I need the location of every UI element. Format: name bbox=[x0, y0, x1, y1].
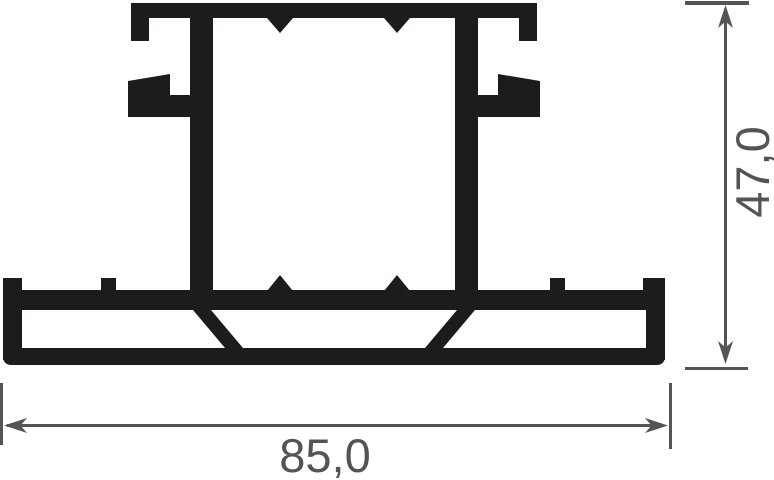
profile-base-tab-right bbox=[550, 278, 565, 292]
profile-base-tooth-left bbox=[267, 275, 293, 291]
profile-right-hook bbox=[478, 74, 540, 117]
profile-base-bottom bbox=[3, 348, 665, 365]
profile-base-tab-left bbox=[101, 278, 116, 292]
profile-top-tooth-right bbox=[384, 18, 410, 33]
profile-drawing: 47,0 85,0 bbox=[0, 0, 774, 480]
height-dim-ext-line-top bbox=[685, 1, 749, 5]
height-dimension: 47,0 bbox=[685, 1, 774, 370]
profile-base-tooth-right bbox=[384, 275, 410, 291]
height-dim-label: 47,0 bbox=[726, 126, 774, 217]
width-dim-line bbox=[7, 424, 663, 427]
profile-left-hook bbox=[128, 74, 190, 117]
profile-shape bbox=[3, 3, 665, 365]
profile-left-leg bbox=[131, 18, 149, 41]
width-dim-label: 85,0 bbox=[279, 429, 370, 480]
profile-left-wall bbox=[190, 18, 213, 310]
width-dim-ext-line-right bbox=[669, 383, 672, 449]
width-dim-ext-line-left bbox=[0, 383, 3, 445]
profile-strut-right bbox=[425, 310, 475, 348]
profile-base-lip-right bbox=[643, 278, 665, 292]
profile-right-wall bbox=[455, 18, 478, 310]
drawing-canvas: 47,0 85,0 bbox=[0, 0, 774, 480]
profile-base-lip-left bbox=[3, 278, 22, 292]
profile-top-tooth-left bbox=[267, 18, 293, 33]
profile-strut-left bbox=[193, 310, 243, 348]
profile-top-cap bbox=[131, 3, 537, 18]
profile-right-leg bbox=[519, 18, 537, 41]
height-dim-ext-line-bottom bbox=[685, 367, 748, 370]
width-dimension: 85,0 bbox=[0, 383, 672, 480]
profile-base-flange bbox=[3, 290, 665, 310]
